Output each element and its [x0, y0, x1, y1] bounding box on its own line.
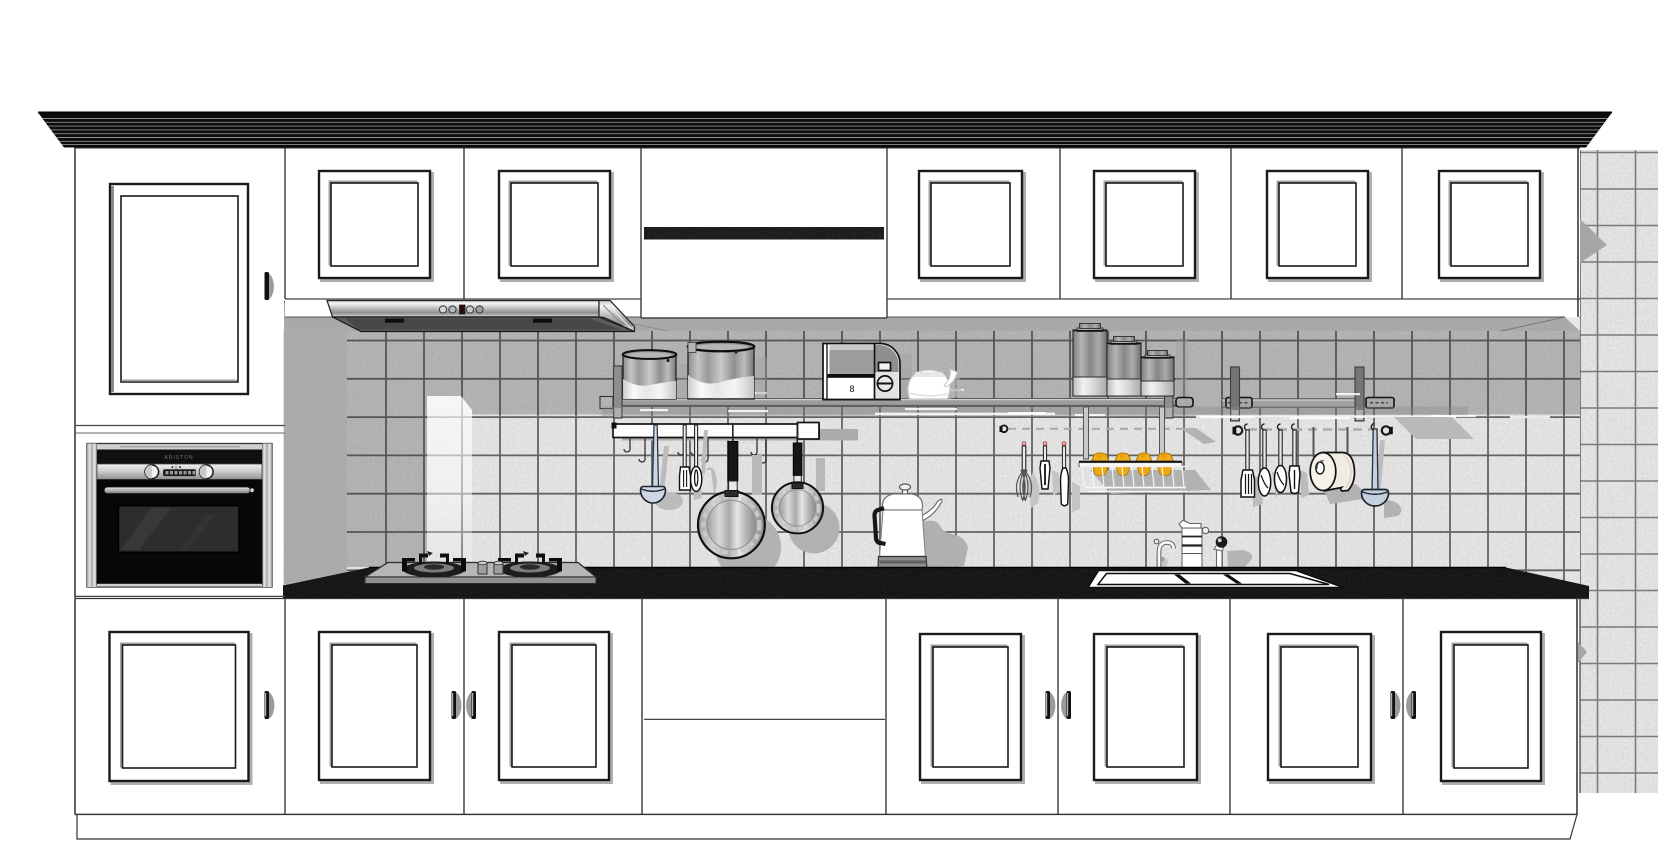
svg-text:8: 8 — [849, 384, 854, 394]
svg-text:ARISTON: ARISTON — [164, 455, 193, 461]
svg-text:● ▯ ●: ● ▯ ● — [171, 464, 182, 469]
